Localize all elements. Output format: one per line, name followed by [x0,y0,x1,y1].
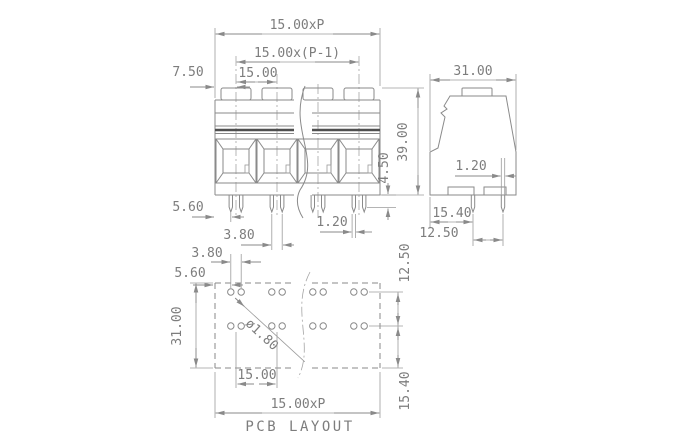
side-dim-pin-width-label: 1.20 [455,159,486,174]
side-bottom-notches [448,187,506,195]
front-dim-pin-width-label: 1.20 [316,215,347,230]
side-cap [462,88,492,96]
pcb-layout-caption: PCB LAYOUT [245,419,354,435]
pcb-dim-total-pitch-label: 15.00xP [271,397,326,412]
side-dim-depth-label: 31.00 [453,64,492,79]
side-dimensions: 31.00 1.20 15.40 12.50 [419,64,516,246]
front-caps [221,88,374,100]
pcb-dimensions: 3.80 5.60 31.00 ø1.80 12.50 15.40 [170,243,413,435]
front-dim-pitch-label: 15.00 [238,66,277,81]
side-pins [471,195,504,212]
pcb-layout [215,272,380,378]
pcb-dim-edge-to-hole-label: 5.60 [174,266,205,281]
pcb-dim-pitch-label: 15.00 [237,368,276,383]
front-sockets [216,139,379,183]
front-dimensions: 15.00xP 15.00x(P-1) 15.00 7.50 5.60 3.80… [172,18,424,250]
front-dim-pin-pair-label: 3.80 [223,228,254,243]
pcb-dim-row-to-edge-label: 15.40 [398,371,413,410]
technical-drawing-page: 15.00xP 15.00x(P-1) 15.00 7.50 5.60 3.80… [0,0,680,440]
front-dim-edge-to-pin-label: 5.60 [172,200,203,215]
pcb-dim-hole-pair-label: 3.80 [191,246,222,261]
side-dim-front-to-pin-label: 15.40 [432,206,471,221]
front-dim-pin-shoulder-label: 4.50 [377,152,392,183]
pcb-break-line [298,272,310,378]
side-body-outline [430,96,516,195]
terminal-block-drawing: 15.00xP 15.00x(P-1) 15.00 7.50 5.60 3.80… [0,0,680,440]
front-dim-half-pitch-label: 7.50 [172,65,203,80]
side-dim-row-spacing-label: 12.50 [419,226,458,241]
pcb-dim-row-spacing-label: 12.50 [398,243,413,282]
front-break-line [297,86,307,218]
side-dim-height-label: 39.00 [396,122,411,161]
side-view [430,88,516,212]
front-dim-pitch-span-label: 15.00x(P-1) [254,46,340,61]
pcb-dim-depth-label: 31.00 [170,306,185,345]
front-dim-total-pitch-label: 15.00xP [270,18,325,33]
